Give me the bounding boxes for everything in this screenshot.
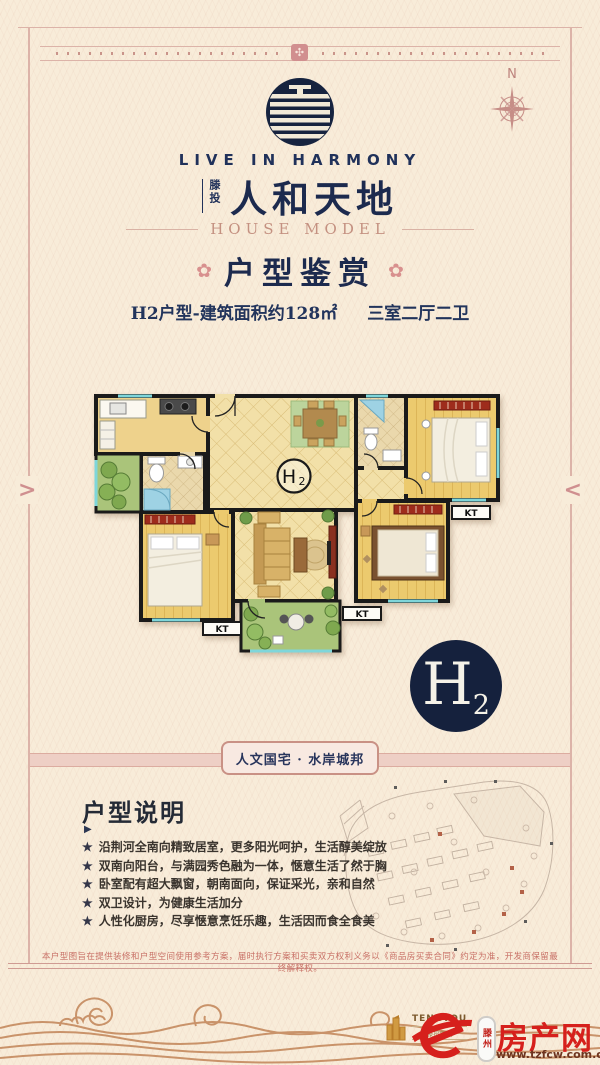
subtitle-line-right [402, 229, 474, 230]
star-icon: ★ [82, 860, 93, 873]
bullet-text: 人性化厨房，尽享惬意烹饪乐趣，生活因而食全食美 [99, 915, 375, 928]
list-item: ★双南向阳台，与满园秀色融为一体，惬意生活了然于胸 [82, 860, 404, 873]
list-item: ★双卫设计，为健康生活加分 [82, 897, 404, 910]
chevron-left-icon: < [562, 476, 584, 504]
unit-badge: H 2 [410, 640, 502, 732]
unit-label-sub: 2 [299, 475, 306, 488]
frame-dashes-right [322, 52, 544, 55]
brand-name: 人和天地 [230, 169, 398, 223]
kt-label: KT [355, 610, 369, 620]
unit-label: H 2 [278, 460, 311, 493]
brand-prefix: 滕投 [202, 179, 222, 213]
section-title-row: ✿ 户型鉴赏 ✿ [0, 248, 600, 293]
unit-specs: H2户型-建筑面积约128㎡三室二厅二卫 [0, 299, 600, 324]
corridor [356, 468, 406, 503]
unit-badge-sub: 2 [473, 692, 490, 719]
unit-area: H2户型-建筑面积约128㎡ [131, 304, 337, 324]
bullet-text: 沿荆河全南向精致居室，更多阳光呵护，生活醇美绽放 [99, 841, 387, 854]
brand-row: 滕投 人和天地 [0, 169, 600, 223]
floor-plan: KT KT KT H 2 [88, 388, 512, 662]
feature-list: ★沿荆河全南向精致居室，更多阳光呵护，生活醇美绽放 ★双南向阳台，与满园秀色融为… [82, 841, 404, 934]
star-icon: ★ [82, 915, 93, 928]
page-title: 户型鉴赏 [224, 248, 376, 293]
subtitle-row: HOUSE MODEL [0, 220, 600, 238]
banner-text: 人文国宅 · 水岸城邦 [236, 749, 365, 768]
list-item: ★沿荆河全南向精致居室，更多阳光呵护，生活醇美绽放 [82, 841, 404, 854]
flower-icon: ✿ [196, 260, 212, 282]
chevron-right-icon: > [16, 476, 38, 504]
dining-set [291, 401, 349, 447]
fcw-e-icon [410, 1004, 478, 1065]
brand-logo-icon [262, 74, 338, 150]
tagline: LIVE IN HARMONY [0, 151, 600, 169]
disclaimer-text: 本户型图旨在提供装修和户型空间使用参考方案，届时执行方案和买卖双方权利义务以《商… [40, 950, 560, 974]
compass-north-label: N [507, 67, 517, 82]
frame-top-line [18, 27, 582, 28]
star-icon: ★ [82, 897, 93, 910]
subtitle-line-left [126, 229, 198, 230]
kt-label: KT [215, 625, 229, 635]
star-icon: ★ [82, 841, 93, 854]
fcw-url[interactable]: www.tzfcw.com.cn [496, 1048, 600, 1061]
description-heading: 户型说明 [82, 793, 186, 828]
triangle-marker-icon: ▶ [84, 824, 92, 835]
subtitle: HOUSE MODEL [210, 220, 390, 238]
compass-icon: N [488, 64, 536, 142]
bullet-text: 双卫设计，为健康生活加分 [99, 897, 243, 910]
list-item: ★卧室配有超大飘窗，朝南面向，保证采光，亲和自然 [82, 878, 404, 891]
poster: ✣ > < N LIVE IN HARMON [0, 0, 600, 1065]
star-icon: ★ [82, 878, 93, 891]
unit-label-main: H [282, 466, 296, 488]
frame-dashes-left [56, 52, 278, 55]
fcw-city: 滕州 [480, 1028, 493, 1050]
banner-plaque: 人文国宅 · 水岸城邦 [221, 741, 379, 775]
kt-label: KT [464, 509, 478, 519]
list-item: ★人性化厨房，尽享惬意烹饪乐趣，生活因而食全食美 [82, 915, 404, 928]
flower-icon: ✿ [388, 260, 404, 282]
unit-rooms: 三室二厅二卫 [367, 304, 469, 324]
rosette-icon: ✣ [291, 44, 308, 61]
fcw-city-badge: 滕州 [477, 1016, 496, 1062]
bullet-text: 卧室配有超大飘窗，朝南面向，保证采光，亲和自然 [99, 878, 375, 891]
bullet-text: 双南向阳台，与满园秀色融为一体，惬意生活了然于胸 [99, 860, 387, 873]
unit-badge-main: H [422, 640, 473, 728]
tengtou-building-icon [384, 1014, 408, 1044]
